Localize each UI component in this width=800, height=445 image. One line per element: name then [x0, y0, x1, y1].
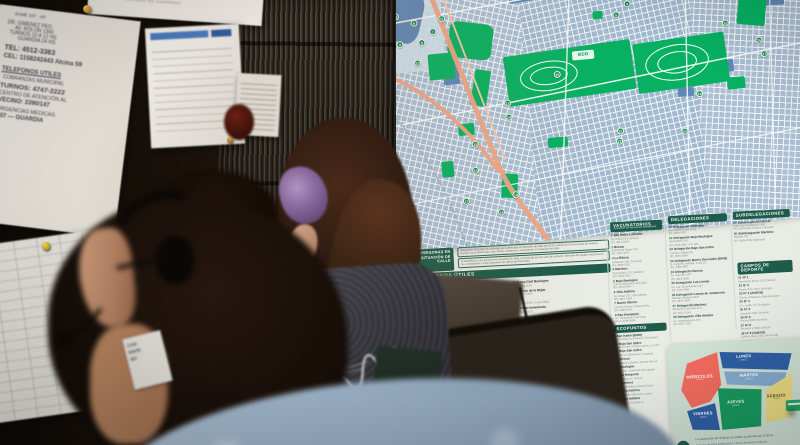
call-center-photo: LISTADO DE GUARDIAS SAME 107 · AP DR. GI… — [0, 0, 800, 445]
